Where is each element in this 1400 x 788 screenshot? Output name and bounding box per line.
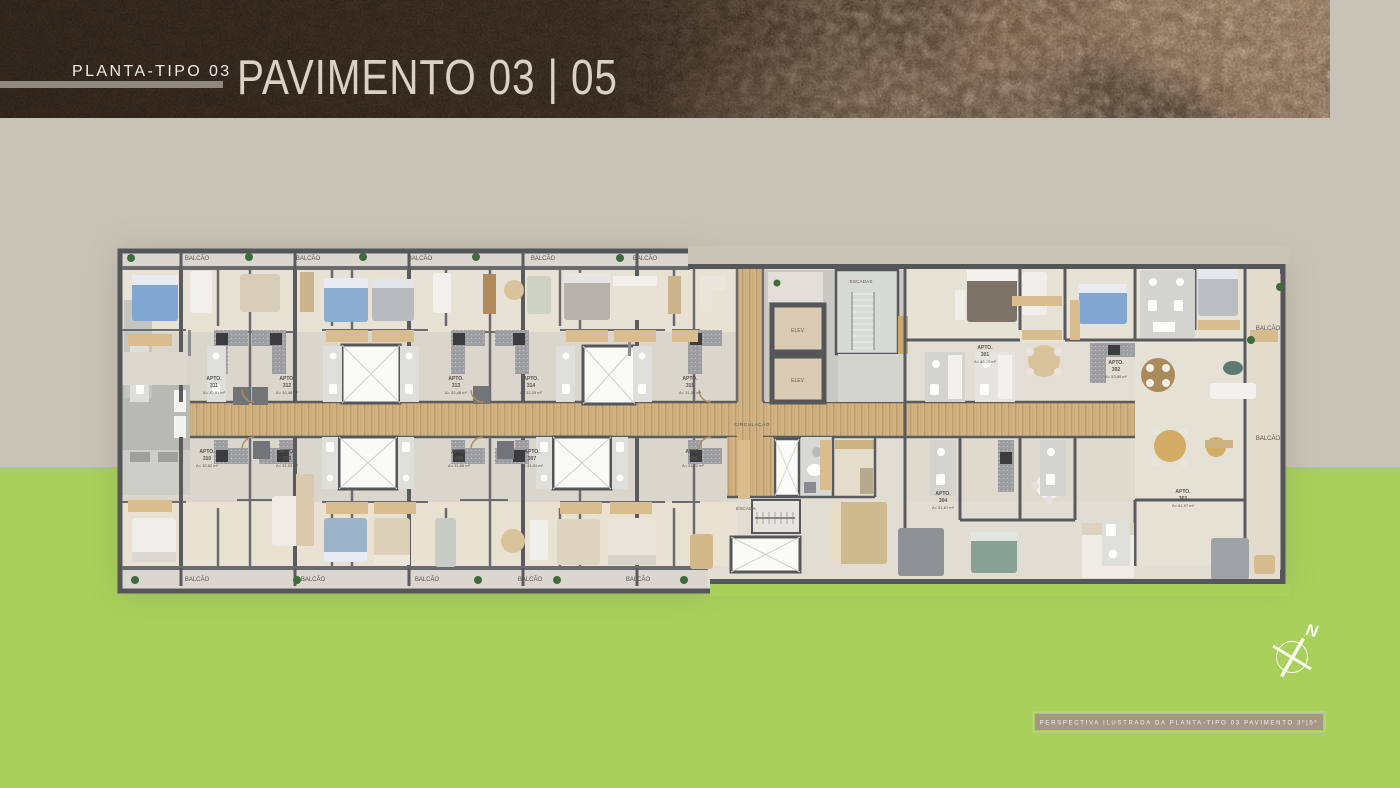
svg-text:301: 301 — [981, 352, 990, 358]
svg-text:ELEV.: ELEV. — [791, 378, 805, 384]
svg-text:APTO.: APTO. — [1108, 360, 1124, 366]
svg-text:BALCÃO: BALCÃO — [1256, 435, 1281, 442]
svg-text:ESCADAS: ESCADAS — [850, 279, 873, 285]
svg-text:BALCÃO: BALCÃO — [518, 576, 543, 583]
svg-text:A= 32,48 m²: A= 32,48 m² — [276, 390, 299, 395]
svg-text:PAVIMENTO 03 | 05: PAVIMENTO 03 | 05 — [237, 49, 618, 105]
svg-text:A= 32,48 m²: A= 32,48 m² — [445, 390, 468, 395]
svg-text:A= 32,51 m²: A= 32,51 m² — [203, 390, 226, 395]
svg-text:ESCADA: ESCADA — [736, 506, 757, 512]
svg-text:A= 31,01 m²: A= 31,01 m² — [679, 390, 702, 395]
svg-text:BALCÃO: BALCÃO — [185, 576, 210, 583]
svg-text:BALCÃO: BALCÃO — [185, 255, 210, 262]
svg-text:A= 61,97 m²: A= 61,97 m² — [1172, 503, 1195, 508]
svg-text:307: 307 — [528, 456, 537, 462]
svg-text:APTO.: APTO. — [199, 449, 215, 455]
svg-text:APTO.: APTO. — [451, 449, 467, 455]
svg-text:PERSPECTIVA ILUSTRADA DA PLANT: PERSPECTIVA ILUSTRADA DA PLANTA-TIPO 03 … — [1040, 720, 1319, 727]
svg-text:A= 31,53 m²: A= 31,53 m² — [276, 463, 299, 468]
svg-text:APTO.: APTO. — [1175, 489, 1191, 495]
svg-text:A= 46,70 m²: A= 46,70 m² — [974, 359, 997, 364]
svg-text:310: 310 — [203, 456, 212, 462]
svg-text:306: 306 — [689, 456, 698, 462]
svg-text:BALCÃO: BALCÃO — [531, 255, 556, 262]
svg-text:BALCÃO: BALCÃO — [1256, 325, 1281, 332]
svg-text:APTO.: APTO. — [524, 449, 540, 455]
svg-text:312: 312 — [283, 383, 292, 389]
svg-text:APTO.: APTO. — [523, 376, 539, 382]
svg-text:309: 309 — [283, 456, 292, 462]
svg-text:313: 313 — [452, 383, 461, 389]
svg-text:APTO.: APTO. — [977, 345, 993, 351]
svg-text:ELEV.: ELEV. — [791, 328, 805, 334]
svg-text:BALCÃO: BALCÃO — [633, 255, 658, 262]
svg-text:303: 303 — [1179, 496, 1188, 502]
svg-text:BALCÃO: BALCÃO — [626, 576, 651, 583]
svg-text:BALCÃO: BALCÃO — [415, 576, 440, 583]
svg-text:A= 31,91 m²: A= 31,91 m² — [521, 463, 544, 468]
svg-text:BALCÃO: BALCÃO — [301, 576, 326, 583]
svg-text:304: 304 — [939, 498, 948, 504]
svg-text:A= 31,72 m²: A= 31,72 m² — [682, 463, 705, 468]
svg-text:APTO.: APTO. — [206, 376, 222, 382]
svg-text:APTO.: APTO. — [935, 491, 951, 497]
svg-text:308: 308 — [455, 456, 464, 462]
svg-text:A= 53,95 m²: A= 53,95 m² — [1105, 374, 1128, 379]
svg-text:APTO.: APTO. — [685, 449, 701, 455]
svg-text:BALCÃO: BALCÃO — [296, 255, 321, 262]
svg-text:311: 311 — [210, 383, 218, 389]
svg-text:PLANTA-TIPO 03: PLANTA-TIPO 03 — [72, 63, 232, 80]
svg-text:BALCÃO: BALCÃO — [408, 255, 433, 262]
svg-text:314: 314 — [527, 383, 536, 389]
svg-text:A= 31,65 m²: A= 31,65 m² — [448, 463, 471, 468]
svg-text:APTO.: APTO. — [682, 376, 698, 382]
svg-text:A= 51,67 m²: A= 51,67 m² — [932, 505, 955, 510]
svg-text:APTO.: APTO. — [279, 376, 295, 382]
svg-text:A= 32,82 m²: A= 32,82 m² — [196, 463, 219, 468]
svg-text:CIRCULAÇÃO: CIRCULAÇÃO — [734, 421, 769, 428]
svg-text:APTO.: APTO. — [279, 449, 295, 455]
svg-text:A= 32,29 m²: A= 32,29 m² — [520, 390, 543, 395]
svg-text:APTO.: APTO. — [448, 376, 464, 382]
svg-text:302: 302 — [1112, 367, 1121, 373]
svg-text:315: 315 — [686, 383, 695, 389]
